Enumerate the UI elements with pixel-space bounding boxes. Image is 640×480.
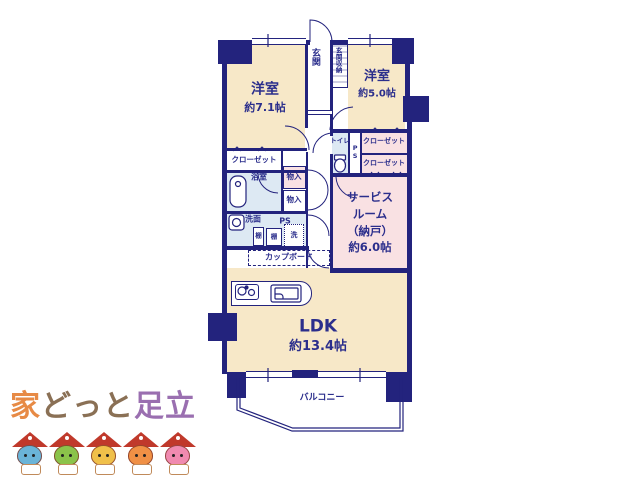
label-yoshitsu50-area: 約5.0帖 [358, 89, 396, 100]
label-laundry: 洗 [291, 232, 298, 240]
mascot-house-icon [12, 432, 48, 474]
wall-segment [362, 153, 407, 155]
wall-segment [227, 211, 308, 214]
label-ps-senmen: PS [279, 218, 291, 227]
label-genkan-storage: 玄関収納 [334, 47, 341, 73]
label-service-room: サービス ルーム （納戸） 約6.0帖 [333, 177, 407, 268]
label-ldk-name: LDK [299, 318, 337, 337]
label-senmen: 洗面 [245, 216, 261, 225]
label-tana-2: 棚 [271, 233, 278, 240]
label-balcony: バルコニー [300, 394, 345, 404]
wall-segment [305, 44, 308, 128]
wall-segment [227, 246, 309, 250]
wall-segment [405, 64, 410, 98]
label-monoire-top: 物入 [287, 173, 302, 181]
label-cupboard: カップボード [265, 254, 313, 263]
mascot-row [12, 432, 196, 474]
wall-segment [330, 44, 333, 136]
label-ldk-area: 約13.4帖 [289, 340, 347, 354]
label-ps-toilet: PS [351, 144, 358, 160]
mascot-house-icon [86, 432, 122, 474]
label-bathroom: 浴室 [251, 174, 267, 183]
mascot-house-icon [123, 432, 159, 474]
label-closet-right-top: クローゼット [363, 138, 405, 146]
floor-plan: 洋室 約7.1帖 洋室 約5.0帖 玄関 玄関収納 トイレ PS クローゼット … [0, 0, 640, 480]
agency-logo: 家どっと足立 [10, 392, 205, 478]
wall-segment [292, 370, 318, 378]
wall-segment [227, 148, 307, 151]
mascot-house-icon [49, 432, 85, 474]
logo-text-dotto: どっと [41, 389, 134, 424]
entrance-door-arc [310, 20, 332, 42]
label-service-line2: ルーム [353, 206, 387, 223]
label-monoire-bottom: 物入 [287, 196, 302, 204]
stove-icon [235, 284, 259, 300]
label-yoshitsu71-name: 洋室 [251, 82, 279, 97]
label-closet-right-bottom: クローゼット [363, 160, 405, 168]
balcony-outline [237, 378, 403, 431]
logo-text: 家どっと足立 [10, 392, 205, 422]
label-service-line4: 約6.0帖 [348, 239, 391, 256]
label-tana-1: 棚 [255, 232, 262, 239]
window [252, 38, 306, 45]
wall-pier [386, 372, 412, 402]
label-toilet: トイレ [330, 137, 350, 144]
label-yoshitsu71-area: 約7.1帖 [244, 102, 286, 114]
label-genkan: 玄関 [309, 48, 319, 66]
window [318, 371, 386, 378]
genkan-step [308, 110, 332, 115]
wall-segment [281, 148, 283, 211]
wall-pier [403, 96, 429, 122]
window [246, 371, 292, 378]
wall-pier [392, 38, 414, 64]
label-closet-left: クローゼット [232, 156, 277, 164]
logo-text-adachi: 足立 [134, 389, 196, 424]
label-yoshitsu50-name: 洋室 [364, 70, 390, 84]
wall-segment [330, 268, 407, 273]
logo-text-ie: 家 [10, 389, 41, 424]
wall-segment [407, 120, 412, 374]
wall-pier [227, 372, 246, 398]
label-service-line3: （納戸） [347, 223, 393, 240]
window [348, 38, 392, 45]
mascot-house-icon [160, 432, 196, 474]
wall-segment [222, 44, 227, 374]
label-service-line1: サービス [347, 189, 393, 206]
wall-segment [332, 129, 407, 133]
